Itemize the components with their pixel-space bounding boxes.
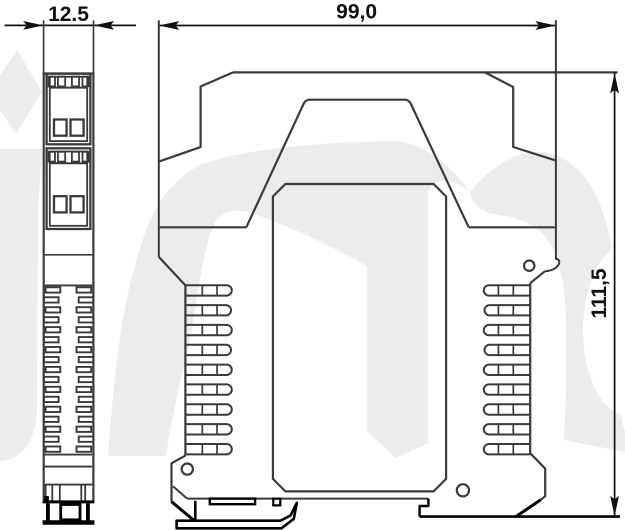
svg-text:99,0: 99,0 xyxy=(336,1,377,24)
svg-text:111,5: 111,5 xyxy=(588,268,611,319)
svg-text:12.5: 12.5 xyxy=(48,3,89,26)
